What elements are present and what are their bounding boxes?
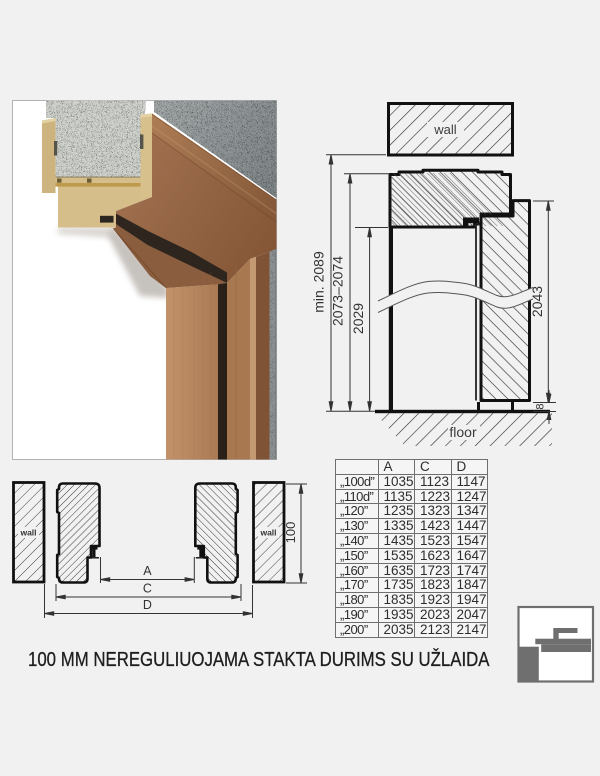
svg-text:2043: 2043 [529, 286, 545, 317]
svg-text:2029: 2029 [350, 303, 366, 334]
svg-text:C: C [143, 582, 152, 596]
svg-text:D: D [143, 598, 152, 612]
svg-text:wall: wall [433, 122, 457, 137]
svg-text:A: A [143, 564, 152, 578]
svg-text:wall: wall [259, 528, 276, 538]
svg-text:wall: wall [19, 528, 36, 538]
svg-text:floor: floor [449, 424, 477, 440]
svg-text:2073–2074: 2073–2074 [330, 256, 346, 326]
svg-text:8: 8 [534, 403, 546, 409]
svg-text:100: 100 [283, 522, 298, 544]
svg-text:min. 2089: min. 2089 [311, 251, 327, 313]
